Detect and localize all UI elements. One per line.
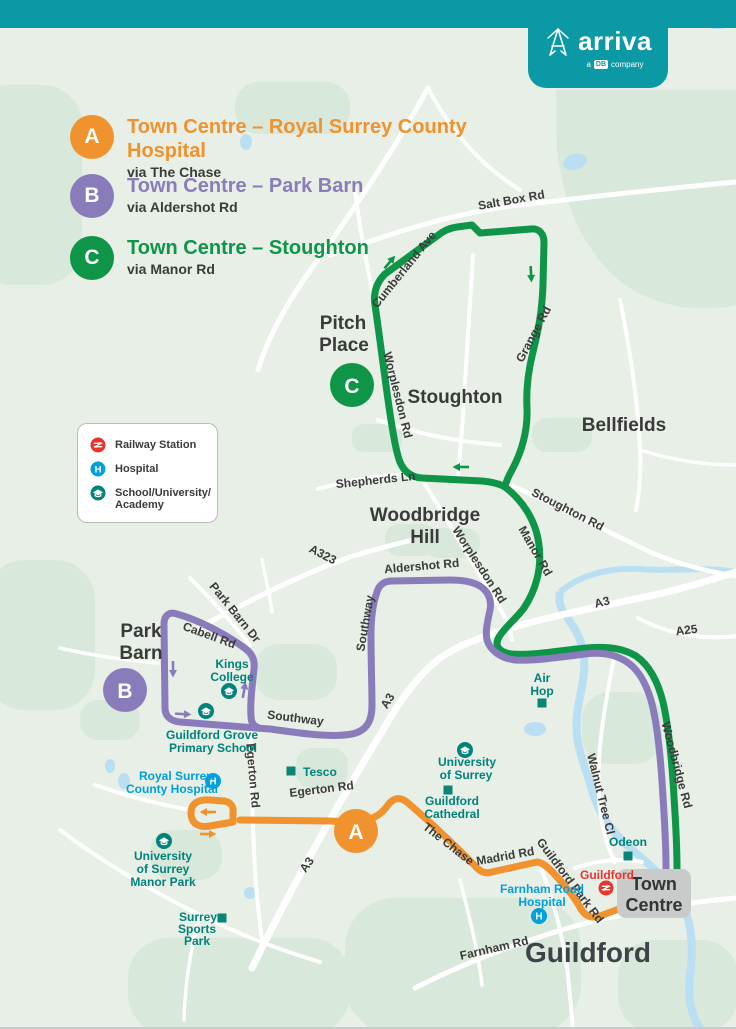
road-label-aldershot-rd: Aldershot Rd	[384, 556, 460, 577]
place-label-woodbridge-hill-2: Hill	[410, 527, 440, 548]
poi-label-manor-park-2: of Surrey	[137, 862, 190, 876]
map-key-box: Railway Station H Hospital School/Univer…	[77, 423, 218, 523]
poi-label-royal-surrey-2: County Hospital	[126, 782, 218, 796]
route-b-badge: B	[70, 174, 114, 218]
poi-label-air-hop-1: Air	[534, 671, 551, 685]
key-row-railway: Railway Station	[90, 437, 205, 453]
route-a-badge: A	[70, 115, 114, 159]
poi-label-royal-surrey-1: Royal Surrey	[139, 769, 213, 783]
route-a-arrow-left-icon	[200, 808, 217, 816]
route-b-arrow-right-icon	[175, 710, 192, 719]
school-icon-manor-park	[156, 833, 172, 849]
place-label-guildford: Guildford	[525, 937, 651, 968]
town-centre-label-1: Town	[631, 874, 677, 894]
route-c-title: Town Centre – Stoughton	[127, 236, 369, 260]
key-hospital-letter: H	[95, 464, 102, 475]
route-b-via: via Aldershot Rd	[127, 198, 363, 216]
poi-label-cathedral-2: Cathedral	[424, 807, 479, 821]
poi-label-manor-park-3: Manor Park	[130, 875, 196, 889]
road-label-shepherds-ln: Shepherds Ln	[335, 469, 416, 491]
arriva-wordmark: arriva	[578, 26, 652, 57]
road-label-the-chase: The Chase	[420, 820, 477, 869]
key-label-school: School/University/ Academy	[115, 485, 211, 511]
poi-label-grove-1: Guildford Grove	[166, 728, 258, 742]
poi-square-surrey-sports	[218, 914, 227, 923]
key-row-school: School/University/ Academy	[90, 485, 205, 511]
place-label-bellfields: Bellfields	[582, 415, 666, 436]
tagline-company: company	[611, 60, 643, 69]
poi-label-manor-park-1: University	[134, 849, 192, 863]
map-badge-a-letter: A	[348, 821, 363, 844]
poi-label-guildford-station: Guildford	[580, 868, 634, 882]
route-a-title: Town Centre – Royal Surrey County Hospit…	[127, 115, 520, 163]
poi-square-odeon	[624, 852, 633, 861]
poi-label-tesco: Tesco	[303, 765, 337, 779]
railway-station-icon	[90, 437, 106, 453]
poi-label-farnham-hospital-1: Farnham Road	[500, 882, 584, 896]
route-b-arrow-down-icon	[169, 661, 177, 678]
key-label-school-line1: School/University/	[115, 487, 211, 499]
poi-label-kings-1: Kings	[215, 657, 249, 671]
key-row-hospital: H Hospital	[90, 461, 205, 477]
route-row-c: C Town Centre – Stoughton via Manor Rd	[70, 236, 369, 280]
route-c-badge: C	[70, 236, 114, 280]
poi-label-uni-surrey-1: University	[438, 755, 496, 769]
route-row-a: A Town Centre – Royal Surrey County Hosp…	[70, 115, 520, 181]
arriva-brand-badge: arriva a DB company	[528, 0, 668, 88]
poi-label-air-hop-2: Hop	[530, 684, 553, 698]
road-label-a323: A323	[307, 542, 339, 568]
place-label-park-barn-2: Barn	[119, 643, 162, 664]
railway-station-icon-guildford	[599, 881, 614, 896]
hospital-icon-farnham-road	[531, 908, 547, 924]
route-c-arrow-down-icon	[527, 266, 536, 283]
key-label-school-line2: Academy	[115, 499, 164, 511]
route-row-b: B Town Centre – Park Barn via Aldershot …	[70, 174, 363, 218]
road-label-a25: A25	[675, 622, 699, 639]
school-icon-guildford-grove	[198, 703, 214, 719]
key-label-railway: Railway Station	[115, 437, 196, 451]
route-c-via: via Manor Rd	[127, 260, 369, 278]
place-label-stoughton: Stoughton	[408, 387, 503, 408]
bus-map-page: H	[0, 0, 736, 1029]
map-badge-c-letter: C	[344, 375, 359, 398]
poi-label-uni-surrey-2: of Surrey	[440, 768, 493, 782]
road-label-southway-horizontal: Southway	[267, 708, 325, 729]
place-label-pitch-place-1: Pitch	[320, 313, 366, 334]
arriva-logo-icon	[544, 26, 572, 58]
db-logo: DB	[594, 60, 608, 69]
poi-label-kings-2: College	[210, 670, 254, 684]
route-b-title: Town Centre – Park Barn	[127, 174, 363, 198]
place-label-pitch-place-2: Place	[319, 335, 369, 356]
poi-label-cathedral-1: Guildford	[425, 794, 479, 808]
poi-label-farnham-hospital-2: Hospital	[518, 895, 565, 909]
school-icon	[90, 485, 106, 501]
poi-label-odeon: Odeon	[609, 835, 647, 849]
tagline-a: a	[586, 60, 590, 69]
town-centre-label-2: Centre	[625, 895, 682, 915]
poi-square-air-hop	[538, 699, 547, 708]
hospital-icon: H	[90, 461, 106, 477]
key-label-hospital: Hospital	[115, 461, 158, 475]
place-label-park-barn-1: Park	[120, 621, 162, 642]
poi-label-grove-2: Primary School	[169, 741, 257, 755]
road-label-stoughton-rd: Stoughton Rd	[529, 485, 606, 533]
map-badge-b-letter: B	[117, 680, 132, 703]
poi-label-sports-3: Park	[184, 934, 210, 948]
road-label-salt-box-rd: Salt Box Rd	[477, 187, 546, 212]
brand-tagline: a DB company	[586, 60, 643, 69]
poi-square-tesco	[287, 767, 296, 776]
place-label-woodbridge-hill-1: Woodbridge	[370, 505, 480, 526]
school-icon-kings-college	[221, 683, 237, 699]
